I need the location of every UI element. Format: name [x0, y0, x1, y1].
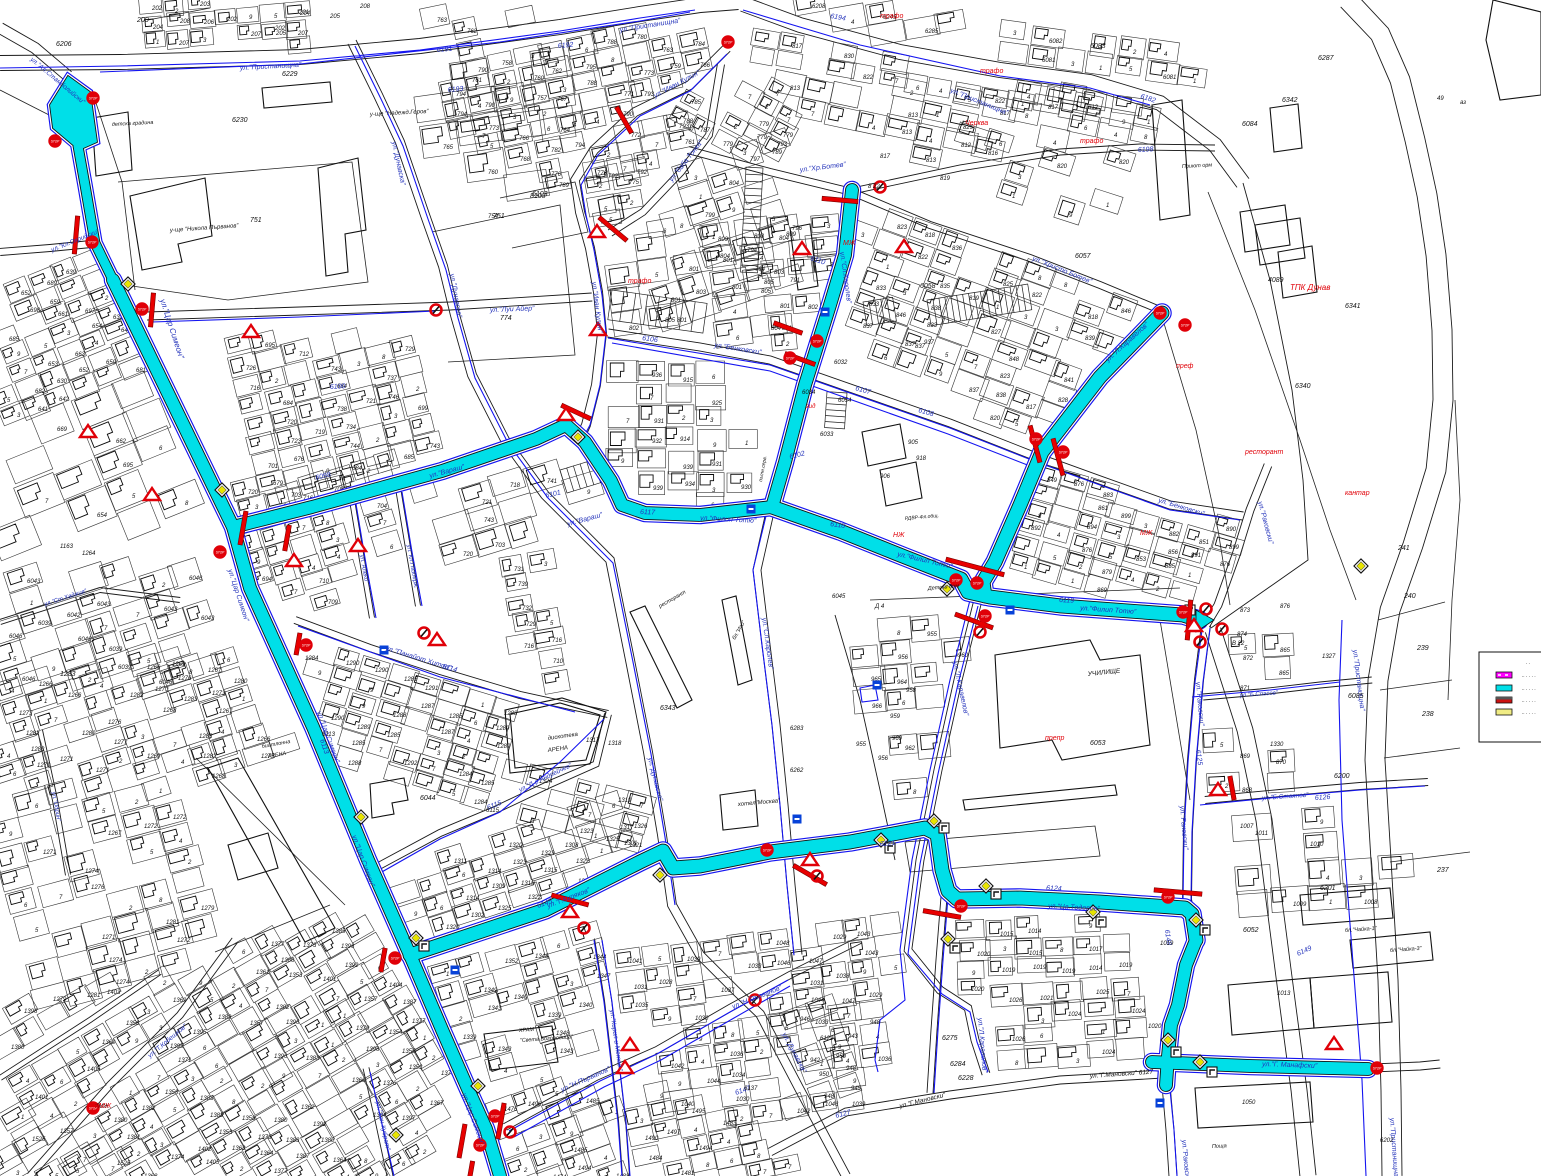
svg-text:1285: 1285	[481, 781, 495, 787]
svg-text:2: 2	[260, 1084, 265, 1090]
svg-text:779: 779	[759, 122, 770, 128]
svg-text:1396: 1396	[24, 1009, 38, 1015]
svg-text:1272: 1272	[144, 824, 158, 830]
svg-text:1: 1	[594, 834, 597, 840]
svg-text:1019: 1019	[1002, 968, 1016, 974]
svg-text:1396: 1396	[341, 944, 355, 950]
svg-text:813: 813	[926, 158, 937, 164]
svg-text:1327: 1327	[1322, 654, 1336, 660]
svg-text:1: 1	[1071, 579, 1074, 585]
svg-text:1358: 1358	[242, 1116, 256, 1122]
svg-text:6039: 6039	[109, 647, 123, 653]
svg-text:813: 813	[908, 113, 919, 119]
svg-text:876: 876	[1082, 548, 1093, 554]
svg-text:1: 1	[1021, 102, 1024, 108]
svg-text:796: 796	[792, 226, 803, 232]
svg-text:788: 788	[683, 119, 694, 125]
svg-text:945: 945	[851, 1086, 862, 1092]
svg-text:1009: 1009	[1293, 902, 1307, 908]
svg-text:202: 202	[274, 26, 286, 32]
svg-text:. .: . .	[1526, 660, 1530, 666]
svg-text:805: 805	[761, 289, 772, 295]
svg-text:794: 794	[575, 143, 586, 149]
svg-text:1: 1	[321, 1023, 324, 1029]
svg-text:1353: 1353	[289, 973, 303, 979]
svg-text:2: 2	[1224, 784, 1229, 790]
svg-text:1396: 1396	[286, 1020, 300, 1026]
svg-text:906: 906	[880, 474, 891, 480]
svg-text:956: 956	[878, 756, 889, 762]
svg-text:685: 685	[404, 455, 415, 461]
svg-text:1043: 1043	[865, 951, 879, 957]
svg-text:1: 1	[600, 849, 603, 855]
svg-text:6032: 6032	[834, 360, 848, 366]
svg-text:1377: 1377	[271, 942, 285, 948]
svg-text:788: 788	[587, 81, 598, 87]
svg-text:208: 208	[179, 19, 191, 25]
svg-text:849: 849	[1047, 478, 1058, 484]
svg-text:6046: 6046	[189, 576, 203, 582]
svg-text:819: 819	[940, 176, 951, 182]
svg-text:преф: преф	[1176, 363, 1194, 370]
svg-text:771: 771	[624, 92, 634, 98]
svg-text:1383: 1383	[306, 1056, 320, 1062]
svg-text:6082: 6082	[1049, 39, 1063, 45]
svg-text:763: 763	[437, 18, 448, 24]
svg-text:653: 653	[48, 362, 59, 368]
svg-text:1024: 1024	[1102, 1050, 1116, 1056]
svg-text:1382: 1382	[276, 1005, 290, 1011]
svg-text:1379: 1379	[356, 1026, 370, 1032]
svg-text:1405: 1405	[87, 1067, 101, 1073]
svg-text:1: 1	[129, 1091, 132, 1097]
svg-text:1: 1	[446, 972, 449, 978]
svg-text:883: 883	[1103, 493, 1114, 499]
svg-text:803: 803	[774, 270, 785, 276]
svg-text:694: 694	[262, 577, 273, 583]
svg-text:2: 2	[506, 80, 511, 86]
svg-text:1377: 1377	[274, 1169, 288, 1175]
svg-text:851: 851	[1199, 540, 1209, 546]
svg-text:1008: 1008	[1364, 900, 1378, 906]
svg-text:STOP: STOP	[786, 357, 795, 361]
svg-text:939: 939	[683, 465, 694, 471]
svg-text:2: 2	[431, 1056, 436, 1062]
svg-text:703: 703	[495, 543, 506, 549]
svg-text:1283: 1283	[184, 697, 198, 703]
svg-text:6100: 6100	[330, 383, 346, 391]
svg-text:1036: 1036	[730, 1052, 744, 1058]
svg-text:1015: 1015	[1000, 932, 1014, 938]
svg-text:1: 1	[242, 697, 245, 703]
svg-text:1315: 1315	[521, 881, 535, 887]
svg-text:1276: 1276	[91, 885, 105, 891]
svg-text:6341: 6341	[1345, 303, 1361, 310]
svg-text:1020: 1020	[1148, 1024, 1162, 1030]
svg-text:1392: 1392	[345, 963, 359, 969]
svg-text:820: 820	[1119, 160, 1130, 166]
svg-text:721: 721	[366, 399, 376, 405]
svg-text:1380: 1380	[114, 1118, 128, 1124]
svg-text:241: 241	[1397, 545, 1410, 552]
svg-text:6275: 6275	[942, 1035, 958, 1042]
svg-text:1274: 1274	[109, 958, 123, 964]
svg-text:1353: 1353	[409, 1065, 423, 1071]
svg-text:822: 822	[918, 255, 929, 261]
svg-text:6229: 6229	[282, 71, 298, 78]
svg-text:6054: 6054	[838, 398, 852, 404]
svg-text:1274: 1274	[116, 980, 130, 986]
svg-text:2: 2	[415, 1087, 420, 1093]
svg-text:1343: 1343	[498, 1047, 512, 1053]
svg-text:1024: 1024	[1132, 1009, 1146, 1015]
svg-text:STOP: STOP	[1164, 896, 1173, 900]
svg-text:STOP: STOP	[813, 340, 822, 344]
svg-text:699: 699	[418, 406, 429, 412]
svg-text:689: 689	[47, 281, 58, 287]
svg-text:890: 890	[1226, 527, 1237, 533]
svg-text:1267: 1267	[108, 831, 122, 837]
svg-text:240: 240	[1403, 593, 1416, 600]
svg-text:793: 793	[777, 142, 788, 148]
svg-text:778: 778	[597, 171, 608, 177]
svg-text:1401: 1401	[35, 1095, 48, 1101]
svg-text:1373: 1373	[303, 943, 317, 949]
svg-text:776: 776	[551, 172, 562, 178]
svg-text:1283: 1283	[60, 671, 76, 678]
svg-text:6046: 6046	[78, 637, 92, 643]
svg-text:969: 969	[892, 736, 903, 742]
svg-text:1: 1	[331, 1043, 334, 1049]
svg-text:682: 682	[35, 389, 46, 395]
svg-text:4089: 4089	[1268, 277, 1284, 284]
svg-text:1035: 1035	[635, 1003, 649, 1009]
svg-text:1033: 1033	[815, 1020, 829, 1026]
svg-text:1031: 1031	[810, 981, 823, 987]
svg-text:трафо: трафо	[980, 68, 1003, 75]
svg-text:833: 833	[927, 323, 938, 329]
svg-text:1: 1	[44, 699, 47, 705]
svg-text:676: 676	[294, 457, 305, 463]
svg-text:1396: 1396	[274, 1054, 288, 1060]
svg-text:1266: 1266	[147, 665, 161, 671]
svg-text:STOP: STOP	[1032, 438, 1041, 442]
svg-text:2: 2	[1078, 565, 1083, 571]
svg-text:1271: 1271	[96, 768, 109, 774]
svg-text:828: 828	[1058, 398, 1069, 404]
svg-text:639: 639	[66, 270, 77, 276]
svg-text:818: 818	[1088, 315, 1099, 321]
svg-text:1019: 1019	[1033, 965, 1047, 971]
svg-text:1285: 1285	[449, 714, 463, 720]
svg-text:1354: 1354	[389, 1030, 403, 1036]
svg-text:716: 716	[250, 386, 261, 392]
svg-text:6045: 6045	[832, 594, 846, 600]
svg-text:1: 1	[1329, 900, 1332, 906]
svg-text:737: 737	[387, 376, 398, 382]
svg-text:846: 846	[1121, 309, 1132, 315]
svg-text:STOP: STOP	[216, 551, 225, 555]
svg-text:1270: 1270	[155, 687, 169, 693]
svg-text:729: 729	[405, 347, 416, 353]
svg-text:1380: 1380	[11, 1045, 25, 1051]
svg-text:1: 1	[1024, 565, 1027, 571]
svg-text:695: 695	[265, 343, 276, 349]
svg-text:1020: 1020	[971, 987, 985, 993]
svg-text:6058: 6058	[920, 283, 936, 290]
svg-text:STOP: STOP	[952, 579, 961, 583]
svg-text:790: 790	[478, 68, 489, 74]
svg-text:2: 2	[759, 1050, 764, 1056]
svg-text:1287: 1287	[441, 730, 455, 736]
svg-text:6046: 6046	[22, 677, 36, 683]
svg-text:729: 729	[526, 622, 537, 628]
svg-text:955: 955	[856, 742, 867, 748]
svg-text:.. . . . .: .. . . . .	[1522, 710, 1536, 716]
svg-text:630: 630	[57, 379, 68, 385]
svg-text:6117: 6117	[640, 509, 656, 517]
svg-text:948: 948	[824, 1094, 835, 1100]
svg-text:6201: 6201	[1320, 885, 1336, 892]
svg-text:1050: 1050	[1242, 1100, 1256, 1106]
svg-text:1: 1	[820, 1062, 823, 1068]
svg-text:1383: 1383	[200, 1096, 214, 1102]
svg-text:6083: 6083	[1090, 43, 1106, 50]
svg-text:1014: 1014	[1089, 966, 1103, 972]
svg-text:1264: 1264	[82, 551, 96, 557]
svg-text:6043: 6043	[97, 602, 111, 608]
svg-text:STOP: STOP	[51, 140, 60, 144]
svg-text:1026: 1026	[1009, 998, 1023, 1004]
svg-text:1026: 1026	[1012, 1037, 1026, 1043]
svg-text:1267: 1267	[219, 709, 233, 715]
svg-text:891: 891	[1191, 553, 1201, 559]
svg-text:932: 932	[652, 439, 663, 445]
svg-text:6115: 6115	[486, 808, 500, 814]
svg-text:6230: 6230	[232, 117, 248, 124]
svg-text:2: 2	[909, 91, 914, 97]
svg-text:STOP: STOP	[973, 582, 982, 586]
svg-text:837: 837	[905, 342, 916, 348]
svg-text:1320: 1320	[509, 843, 523, 849]
svg-text:207: 207	[297, 31, 309, 37]
svg-text:789: 789	[559, 183, 570, 189]
svg-text:1014: 1014	[1028, 929, 1042, 935]
svg-text:205: 205	[329, 14, 341, 20]
svg-text:НЖ: НЖ	[893, 532, 905, 539]
svg-text:1028: 1028	[659, 980, 673, 986]
svg-text:6122: 6122	[820, 1036, 834, 1042]
svg-text:925: 925	[712, 401, 723, 407]
svg-text:1015: 1015	[1029, 951, 1043, 957]
svg-text:1383: 1383	[286, 1138, 300, 1144]
svg-text:803: 803	[696, 290, 707, 296]
svg-text:846: 846	[896, 313, 907, 319]
svg-text:1024: 1024	[1068, 1012, 1082, 1018]
svg-text:200: 200	[136, 17, 149, 24]
svg-text:1: 1	[1099, 66, 1102, 72]
svg-text:1029: 1029	[833, 935, 847, 941]
svg-text:1019: 1019	[1119, 963, 1133, 969]
svg-text:1280: 1280	[82, 731, 96, 737]
svg-text:915: 915	[683, 378, 694, 384]
svg-text:1273: 1273	[212, 691, 226, 697]
svg-text:966: 966	[872, 704, 883, 710]
svg-text:1283: 1283	[31, 747, 45, 753]
svg-text:662: 662	[116, 439, 127, 445]
svg-text:734: 734	[346, 425, 357, 431]
svg-text:822: 822	[995, 99, 1006, 105]
svg-text:2: 2	[239, 1167, 244, 1173]
svg-text:787: 787	[700, 128, 711, 134]
svg-text:1269: 1269	[147, 754, 161, 760]
svg-text:1290: 1290	[331, 716, 345, 722]
svg-text:6042: 6042	[67, 613, 81, 619]
svg-text:6283: 6283	[790, 726, 804, 732]
svg-text:6124: 6124	[1046, 885, 1062, 893]
svg-text:1288: 1288	[348, 761, 362, 767]
svg-text:6137: 6137	[744, 1086, 758, 1092]
svg-text:6043: 6043	[27, 579, 41, 585]
svg-text:1041: 1041	[629, 959, 642, 965]
svg-text:723: 723	[291, 439, 302, 445]
svg-text:1353: 1353	[219, 1130, 233, 1136]
svg-text:6033: 6033	[820, 432, 834, 438]
svg-text:802: 802	[808, 305, 819, 311]
svg-text:1281: 1281	[87, 993, 100, 999]
svg-text:1371: 1371	[178, 1058, 191, 1064]
svg-text:1343: 1343	[488, 1006, 502, 1012]
svg-text:1282: 1282	[26, 731, 40, 737]
svg-text:1496: 1496	[528, 1102, 542, 1108]
svg-text:МЖ: МЖ	[843, 240, 856, 247]
svg-text:2: 2	[375, 438, 380, 444]
svg-text:202: 202	[151, 6, 163, 12]
svg-text:1525: 1525	[117, 1161, 131, 1167]
svg-text:1274: 1274	[85, 869, 99, 875]
svg-text:710: 710	[553, 659, 564, 665]
svg-text:1291: 1291	[425, 686, 438, 692]
svg-text:772: 772	[631, 133, 642, 139]
svg-text:1314: 1314	[488, 869, 502, 875]
svg-text:6052: 6052	[1243, 927, 1259, 934]
svg-text:207: 207	[178, 41, 190, 47]
svg-text:1355: 1355	[402, 1049, 416, 1055]
svg-text:1: 1	[745, 441, 748, 447]
svg-text:791: 791	[790, 278, 800, 284]
svg-text:720: 720	[287, 420, 298, 426]
svg-text:760: 760	[488, 170, 499, 176]
svg-text:1309: 1309	[492, 884, 506, 890]
svg-text:1380: 1380	[321, 1138, 335, 1144]
svg-text:2: 2	[785, 342, 790, 348]
svg-text:1290: 1290	[375, 668, 389, 674]
svg-text:1280: 1280	[234, 679, 248, 685]
svg-text:802: 802	[629, 326, 640, 332]
svg-text:6043: 6043	[164, 607, 178, 613]
svg-text:1044: 1044	[707, 1079, 721, 1085]
svg-text:1039: 1039	[852, 1102, 866, 1108]
svg-text:885: 885	[1165, 564, 1176, 570]
svg-text:STOP: STOP	[1179, 611, 1188, 615]
svg-text:1: 1	[1147, 120, 1150, 126]
svg-text:710: 710	[319, 579, 330, 585]
svg-text:804: 804	[729, 181, 740, 187]
svg-text:6057: 6057	[1075, 253, 1092, 260]
svg-text:2: 2	[136, 1152, 141, 1158]
svg-text:813: 813	[902, 130, 913, 136]
svg-text:1381: 1381	[127, 1135, 140, 1141]
svg-text:2МЖ: 2МЖ	[94, 1103, 112, 1110]
svg-text:2: 2	[415, 387, 420, 393]
svg-text:762: 762	[467, 29, 478, 35]
svg-text:1025: 1025	[1096, 990, 1110, 996]
svg-text:1: 1	[1102, 1030, 1105, 1036]
svg-text:759: 759	[671, 64, 682, 70]
svg-text:STOP: STOP	[724, 41, 733, 45]
svg-text:818: 818	[925, 233, 936, 239]
svg-text:726: 726	[246, 366, 257, 372]
svg-text:2: 2	[598, 184, 603, 190]
svg-text:1034: 1034	[732, 1073, 746, 1079]
svg-text:ХРАМ: ХРАМ	[518, 1027, 535, 1034]
svg-text:830: 830	[844, 54, 855, 60]
svg-text:Черква: Черква	[965, 120, 988, 127]
svg-text:955: 955	[927, 632, 938, 638]
svg-text:764: 764	[560, 128, 571, 134]
svg-text:1357: 1357	[364, 997, 378, 1003]
svg-text:964: 964	[897, 680, 908, 686]
svg-text:746: 746	[389, 395, 400, 401]
svg-text:1030: 1030	[687, 957, 701, 963]
svg-text:1483: 1483	[723, 1121, 737, 1127]
svg-text:2: 2	[73, 1102, 78, 1108]
svg-text:751: 751	[250, 217, 262, 224]
svg-text:2: 2	[118, 759, 123, 765]
svg-text:861: 861	[1098, 506, 1108, 512]
svg-text:2: 2	[764, 105, 769, 111]
svg-text:943: 943	[848, 1034, 859, 1040]
svg-text:1282: 1282	[203, 754, 217, 760]
svg-text:1282: 1282	[130, 693, 144, 699]
svg-text:1013: 1013	[1277, 991, 1291, 997]
svg-text:1369: 1369	[173, 998, 187, 1004]
svg-text:768: 768	[520, 157, 531, 163]
svg-text:239: 239	[1416, 645, 1429, 652]
svg-text:6046: 6046	[9, 634, 23, 640]
svg-text:817: 817	[1026, 405, 1037, 411]
svg-text:805: 805	[764, 280, 775, 286]
svg-text:1484: 1484	[649, 1156, 663, 1162]
svg-text:STOP: STOP	[1373, 1067, 1382, 1071]
svg-text:948: 948	[870, 1020, 881, 1026]
svg-text:2: 2	[274, 379, 279, 385]
svg-text:732: 732	[522, 606, 533, 612]
svg-text:2: 2	[681, 416, 686, 422]
svg-text:654: 654	[92, 324, 103, 330]
svg-text:1388: 1388	[210, 1113, 224, 1119]
svg-text:1376: 1376	[383, 1081, 397, 1087]
svg-text:873: 873	[1240, 608, 1251, 614]
svg-text:865: 865	[1280, 648, 1291, 654]
svg-text:1364: 1364	[333, 1158, 347, 1164]
svg-text:1401: 1401	[323, 977, 336, 983]
svg-text:788: 788	[607, 40, 618, 46]
svg-text:2: 2	[461, 755, 466, 761]
svg-text:879: 879	[1102, 570, 1113, 576]
svg-text:1292: 1292	[404, 761, 418, 767]
svg-text:1358: 1358	[165, 1090, 179, 1096]
